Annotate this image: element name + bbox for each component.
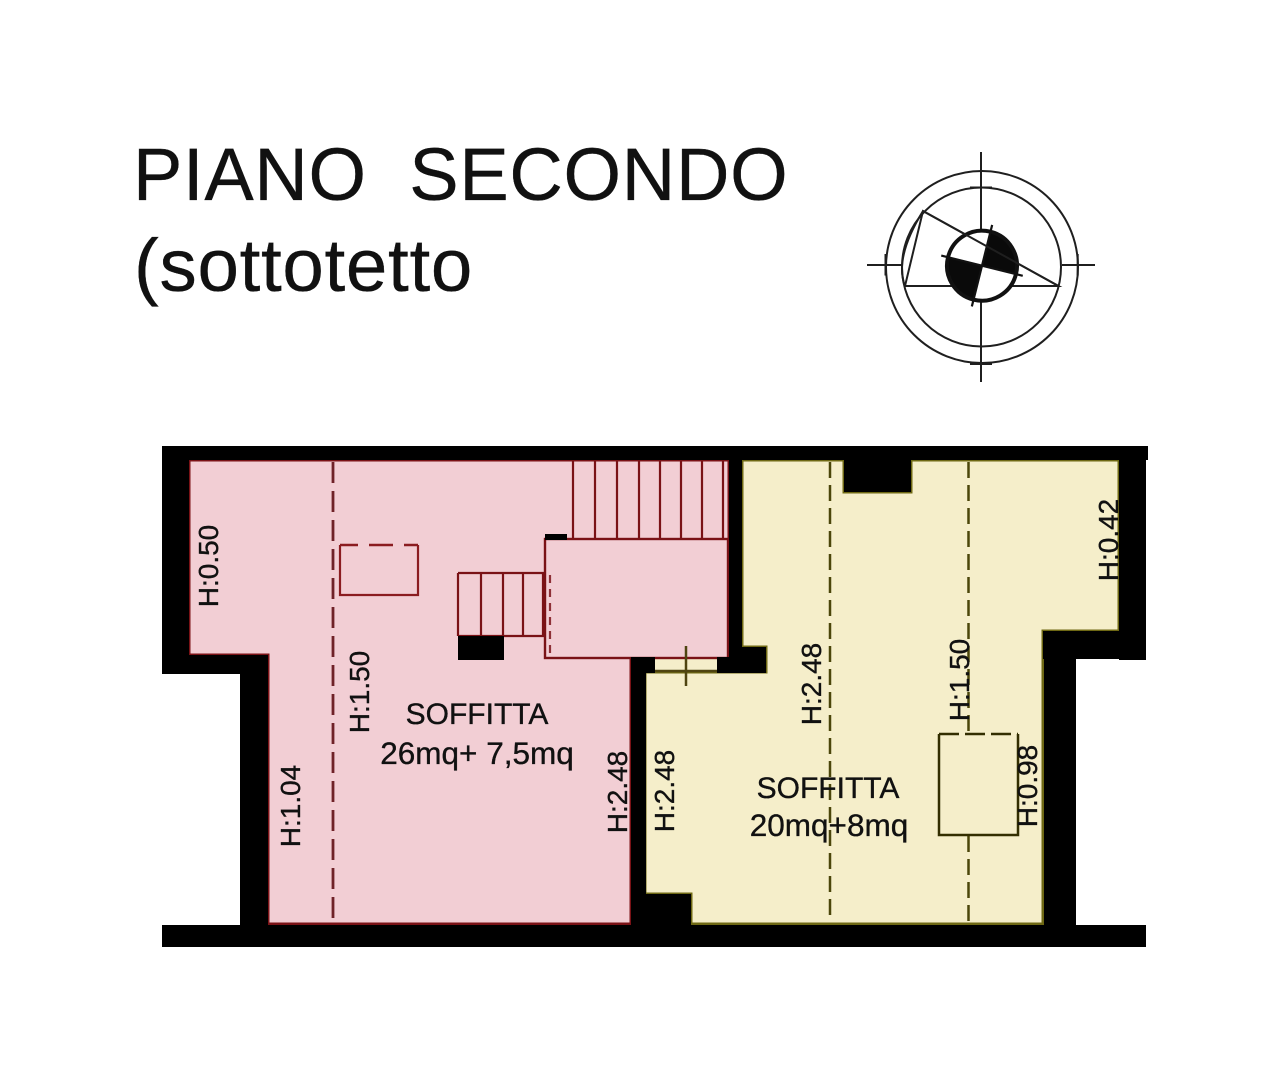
svg-text:H:2.48: H:2.48 (796, 643, 827, 726)
svg-text:H:0.50: H:0.50 (193, 525, 224, 608)
svg-text:20mq+8mq: 20mq+8mq (750, 807, 908, 843)
svg-text:PIANO SECONDO: PIANO SECONDO (133, 133, 788, 216)
svg-text:H:0.98: H:0.98 (1012, 745, 1043, 828)
svg-text:H:1.50: H:1.50 (944, 639, 975, 722)
svg-text:(sottotetto: (sottotetto (134, 224, 473, 307)
svg-text:H:2.48: H:2.48 (649, 750, 680, 833)
svg-text:H:1.50: H:1.50 (344, 651, 375, 734)
svg-text:H:2.48: H:2.48 (602, 751, 633, 834)
svg-text:26mq+ 7,5mq: 26mq+ 7,5mq (380, 735, 574, 771)
svg-text:H:0.42: H:0.42 (1093, 499, 1124, 582)
svg-text:SOFFITTA: SOFFITTA (757, 772, 900, 805)
svg-text:SOFFITTA: SOFFITTA (406, 698, 549, 731)
svg-text:H:1.04: H:1.04 (275, 765, 306, 848)
